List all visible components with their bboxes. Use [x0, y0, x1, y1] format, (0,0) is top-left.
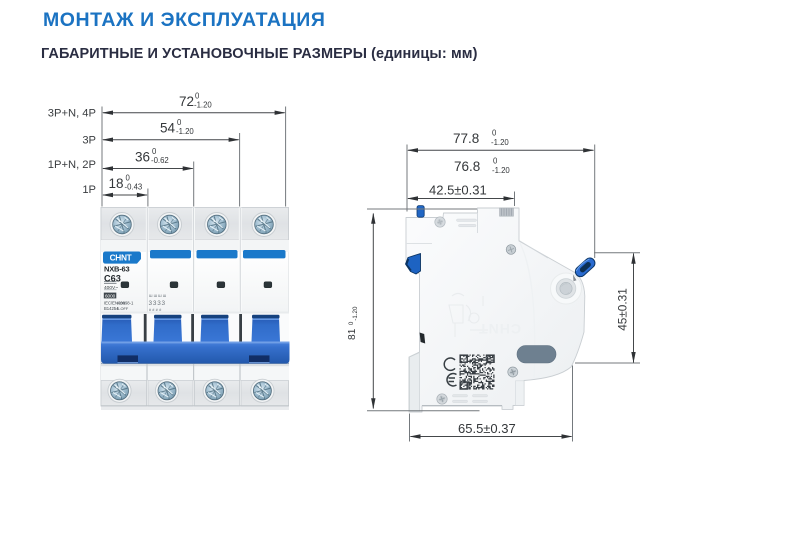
svg-text:42.5±0.31: 42.5±0.31 [429, 183, 487, 198]
svg-text:0-OFF: 0-OFF [117, 306, 129, 311]
svg-text:54: 54 [160, 121, 176, 136]
svg-text:CHNT: CHNT [478, 321, 521, 337]
svg-text:45±0.31: 45±0.31 [615, 288, 629, 331]
svg-text:0: 0 [348, 321, 355, 325]
svg-text:81: 81 [347, 328, 358, 340]
svg-text:18: 18 [109, 176, 124, 191]
svg-text:0: 0 [493, 157, 498, 166]
svg-text:CHNT: CHNT [110, 252, 132, 262]
svg-text:0: 0 [126, 174, 131, 183]
svg-text:36: 36 [135, 150, 150, 165]
svg-text:-1.20: -1.20 [352, 306, 359, 321]
svg-text:-1.20: -1.20 [194, 101, 212, 110]
svg-text:-1.20: -1.20 [176, 127, 194, 136]
svg-text:-1.20: -1.20 [491, 138, 509, 147]
svg-text:77.8: 77.8 [453, 131, 479, 146]
svg-text:0: 0 [492, 129, 497, 138]
svg-text:6000: 6000 [105, 293, 116, 298]
svg-text:76.8: 76.8 [454, 159, 480, 174]
svg-text:ШШШШ: ШШШШ [149, 294, 167, 298]
svg-text:-1.20: -1.20 [492, 166, 510, 175]
svg-text:-0.62: -0.62 [151, 156, 169, 165]
svg-text:NXB-63: NXB-63 [104, 265, 130, 274]
svg-text:3P+N, 4P: 3P+N, 4P [48, 108, 96, 120]
svg-text:-0.43: -0.43 [125, 183, 143, 192]
svg-text:1P+N, 2P: 1P+N, 2P [48, 159, 96, 171]
svg-text:65.5±0.37: 65.5±0.37 [458, 421, 516, 436]
svg-text:0: 0 [177, 118, 182, 127]
svg-text:0: 0 [152, 147, 157, 156]
svg-text:72: 72 [179, 94, 194, 109]
svg-text:3333: 3333 [149, 300, 166, 307]
svg-text:I-ON: I-ON [117, 301, 125, 306]
svg-text:0: 0 [195, 92, 200, 101]
svg-text:####: #### [149, 308, 163, 312]
svg-text:1P: 1P [82, 184, 96, 196]
svg-text:3P: 3P [82, 135, 96, 147]
